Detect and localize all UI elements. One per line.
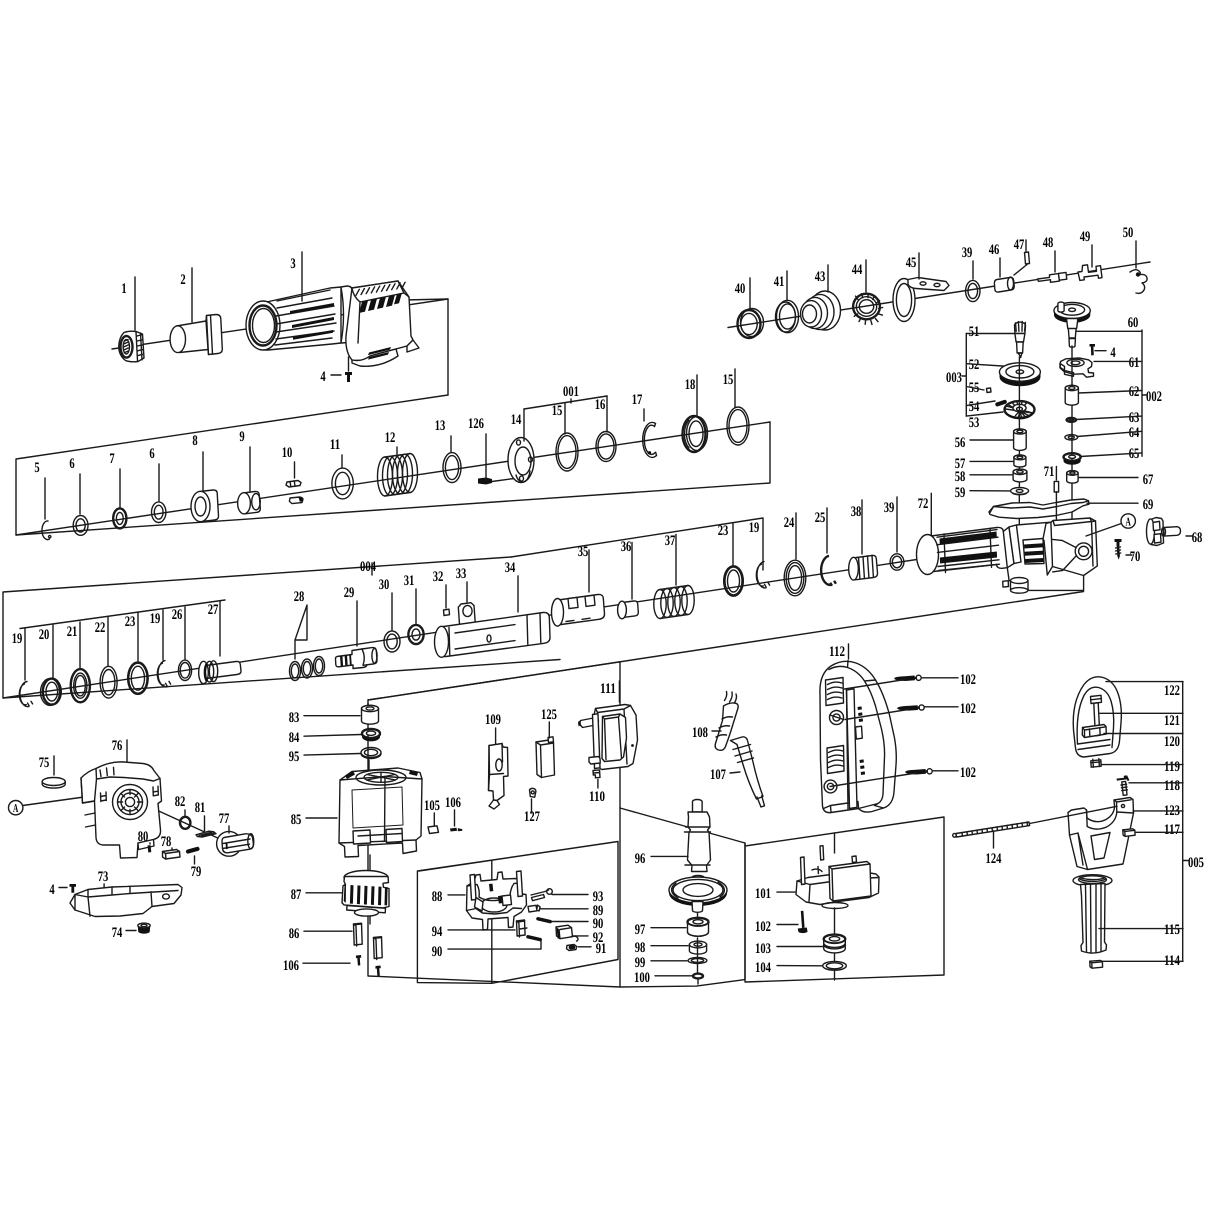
svg-text:31: 31 — [404, 573, 415, 589]
svg-text:15: 15 — [552, 403, 563, 419]
svg-text:37: 37 — [665, 533, 676, 549]
svg-text:48: 48 — [1043, 235, 1054, 251]
svg-text:91: 91 — [596, 941, 607, 957]
svg-text:005: 005 — [1188, 855, 1204, 871]
svg-text:44: 44 — [852, 262, 863, 278]
svg-text:118: 118 — [1164, 778, 1180, 794]
svg-text:12: 12 — [385, 430, 396, 446]
svg-text:109: 109 — [485, 712, 501, 728]
svg-text:76: 76 — [112, 738, 123, 754]
svg-text:004: 004 — [360, 559, 376, 575]
svg-text:63: 63 — [1129, 410, 1140, 426]
svg-text:9: 9 — [239, 429, 244, 445]
svg-text:17: 17 — [632, 392, 643, 408]
svg-text:35: 35 — [578, 544, 589, 560]
svg-text:98: 98 — [635, 940, 646, 956]
svg-text:16: 16 — [595, 397, 606, 413]
svg-text:003: 003 — [946, 370, 962, 386]
svg-text:104: 104 — [755, 960, 771, 976]
svg-text:40: 40 — [735, 281, 746, 297]
svg-text:69: 69 — [1143, 497, 1154, 513]
svg-text:54: 54 — [969, 399, 980, 415]
svg-text:28: 28 — [294, 589, 305, 605]
svg-text:67: 67 — [1143, 472, 1154, 488]
svg-text:102: 102 — [960, 672, 976, 688]
svg-text:120: 120 — [1164, 734, 1180, 750]
svg-text:3: 3 — [290, 256, 295, 272]
svg-text:39: 39 — [884, 500, 895, 516]
svg-text:34: 34 — [505, 560, 516, 576]
svg-text:53: 53 — [969, 415, 980, 431]
svg-text:102: 102 — [960, 701, 976, 717]
svg-text:41: 41 — [774, 274, 785, 290]
svg-text:106: 106 — [283, 958, 299, 974]
svg-text:27: 27 — [208, 602, 219, 618]
svg-text:101: 101 — [755, 886, 771, 902]
svg-text:10: 10 — [282, 445, 293, 461]
svg-text:8: 8 — [192, 433, 197, 449]
svg-text:002: 002 — [1146, 389, 1162, 405]
svg-text:108: 108 — [692, 725, 708, 741]
svg-text:4: 4 — [1110, 345, 1115, 361]
svg-text:14: 14 — [511, 412, 522, 428]
svg-text:25: 25 — [815, 510, 826, 526]
svg-text:77: 77 — [219, 811, 230, 827]
svg-text:39: 39 — [962, 245, 973, 261]
svg-text:18: 18 — [685, 377, 696, 393]
svg-text:26: 26 — [172, 607, 183, 623]
svg-text:71: 71 — [1044, 464, 1055, 480]
svg-text:117: 117 — [1164, 822, 1180, 838]
svg-text:36: 36 — [621, 539, 632, 555]
svg-text:49: 49 — [1080, 229, 1091, 245]
svg-text:33: 33 — [456, 566, 467, 582]
svg-text:30: 30 — [379, 577, 390, 593]
svg-text:95: 95 — [289, 749, 300, 765]
svg-text:62: 62 — [1129, 384, 1140, 400]
svg-text:59: 59 — [955, 485, 966, 501]
svg-text:124: 124 — [986, 851, 1002, 867]
svg-text:74: 74 — [112, 925, 123, 941]
svg-text:61: 61 — [1129, 355, 1140, 371]
svg-text:115: 115 — [1164, 922, 1180, 938]
svg-text:22: 22 — [95, 620, 106, 636]
svg-text:15: 15 — [723, 372, 734, 388]
svg-text:126: 126 — [468, 416, 484, 432]
svg-text:13: 13 — [435, 418, 446, 434]
svg-text:43: 43 — [815, 269, 826, 285]
svg-text:97: 97 — [635, 922, 646, 938]
svg-text:7: 7 — [109, 451, 114, 467]
svg-text:75: 75 — [39, 755, 50, 771]
svg-text:110: 110 — [589, 789, 605, 805]
svg-text:6: 6 — [149, 446, 154, 462]
svg-text:105: 105 — [424, 798, 440, 814]
svg-text:2: 2 — [180, 272, 185, 288]
svg-text:121: 121 — [1164, 713, 1180, 729]
svg-text:20: 20 — [39, 627, 50, 643]
svg-text:107: 107 — [710, 767, 726, 783]
svg-text:70: 70 — [1130, 549, 1141, 565]
svg-text:38: 38 — [851, 504, 862, 520]
svg-text:78: 78 — [161, 834, 172, 850]
svg-text:51: 51 — [969, 324, 980, 340]
svg-text:106: 106 — [445, 795, 461, 811]
svg-text:6: 6 — [69, 456, 74, 472]
svg-text:47: 47 — [1014, 237, 1025, 253]
svg-text:1: 1 — [121, 281, 126, 297]
svg-text:86: 86 — [289, 926, 300, 942]
svg-text:001: 001 — [563, 384, 579, 400]
svg-text:80: 80 — [138, 829, 149, 845]
svg-text:82: 82 — [175, 794, 186, 810]
svg-text:46: 46 — [989, 242, 1000, 258]
svg-text:68: 68 — [1192, 530, 1203, 546]
svg-text:A: A — [1126, 515, 1132, 529]
svg-text:88: 88 — [432, 889, 443, 905]
svg-text:73: 73 — [98, 869, 109, 885]
svg-text:87: 87 — [291, 887, 302, 903]
svg-text:50: 50 — [1123, 225, 1134, 241]
svg-text:4: 4 — [320, 369, 325, 385]
svg-text:19: 19 — [150, 611, 161, 627]
svg-text:125: 125 — [541, 707, 557, 723]
svg-text:45: 45 — [906, 255, 917, 271]
svg-text:21: 21 — [67, 624, 78, 640]
svg-text:A: A — [13, 801, 19, 815]
svg-text:83: 83 — [289, 710, 300, 726]
svg-text:11: 11 — [330, 437, 341, 453]
svg-text:111: 111 — [600, 681, 616, 697]
svg-text:58: 58 — [955, 469, 966, 485]
svg-text:60: 60 — [1128, 315, 1139, 331]
svg-text:72: 72 — [918, 496, 929, 512]
svg-text:5: 5 — [34, 460, 39, 476]
svg-text:29: 29 — [344, 585, 355, 601]
svg-text:85: 85 — [291, 812, 302, 828]
svg-text:99: 99 — [635, 955, 646, 971]
svg-text:94: 94 — [432, 924, 443, 940]
svg-text:90: 90 — [432, 944, 443, 960]
svg-text:23: 23 — [125, 614, 136, 630]
svg-text:56: 56 — [955, 435, 966, 451]
svg-text:112: 112 — [829, 644, 845, 660]
svg-text:81: 81 — [195, 800, 206, 816]
svg-text:122: 122 — [1164, 683, 1180, 699]
svg-text:119: 119 — [1164, 759, 1180, 775]
svg-text:102: 102 — [755, 919, 771, 935]
svg-text:19: 19 — [749, 520, 760, 536]
svg-text:19: 19 — [12, 631, 23, 647]
svg-text:102: 102 — [960, 765, 976, 781]
svg-text:4: 4 — [49, 882, 54, 898]
svg-text:96: 96 — [635, 851, 646, 867]
svg-text:103: 103 — [755, 941, 771, 957]
svg-text:100: 100 — [634, 970, 650, 986]
svg-text:64: 64 — [1129, 425, 1140, 441]
svg-text:23: 23 — [718, 523, 729, 539]
svg-text:24: 24 — [784, 515, 795, 531]
svg-text:84: 84 — [289, 730, 300, 746]
svg-text:79: 79 — [191, 864, 202, 880]
svg-text:32: 32 — [433, 569, 444, 585]
